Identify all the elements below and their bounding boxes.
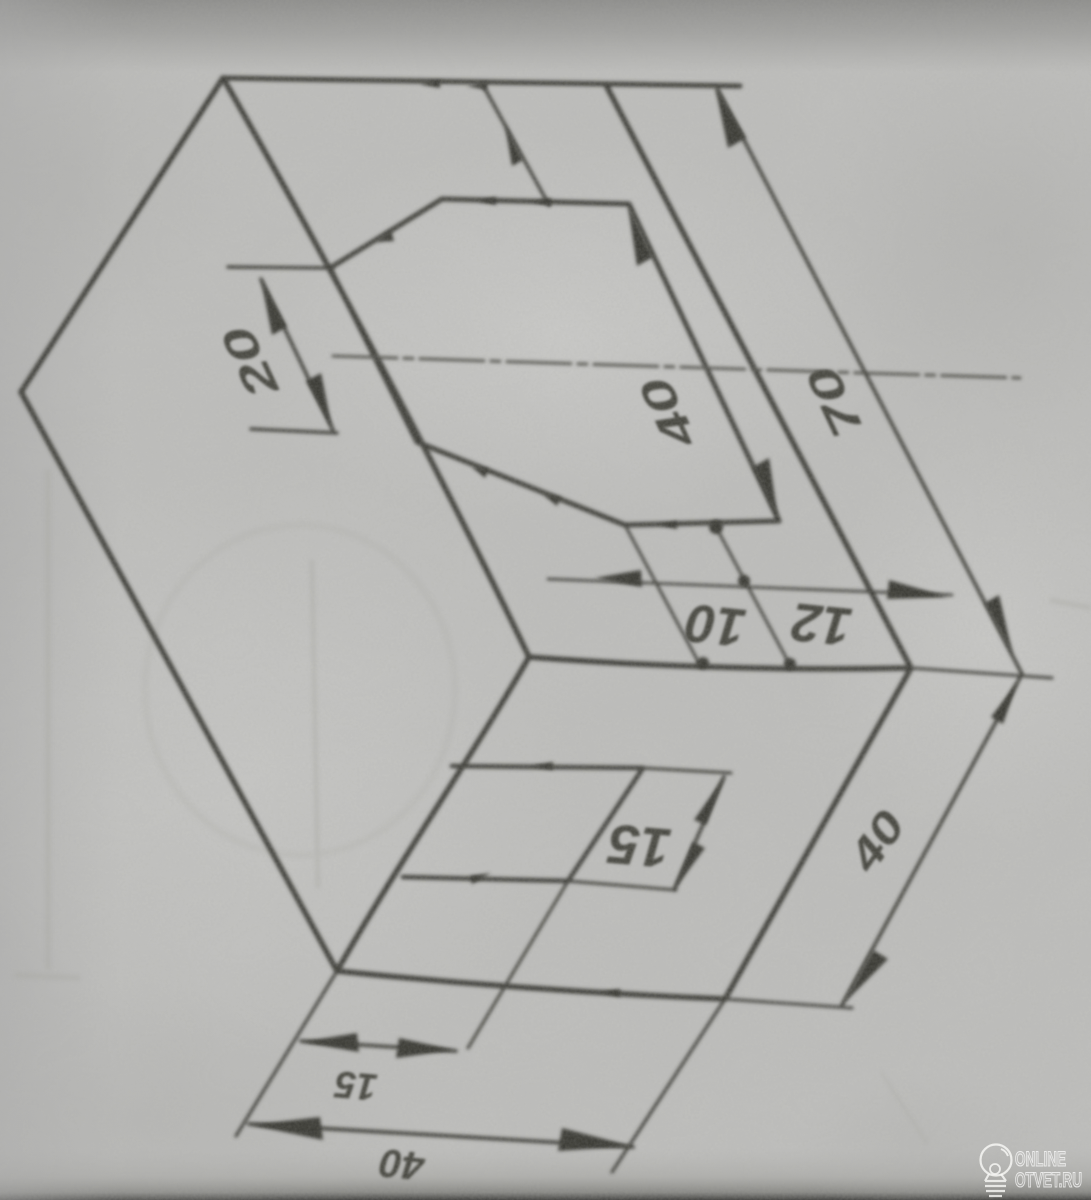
svg-text:ONLINE: ONLINE	[1015, 1148, 1066, 1171]
svg-text:OTVET.RU: OTVET.RU	[1015, 1169, 1082, 1192]
